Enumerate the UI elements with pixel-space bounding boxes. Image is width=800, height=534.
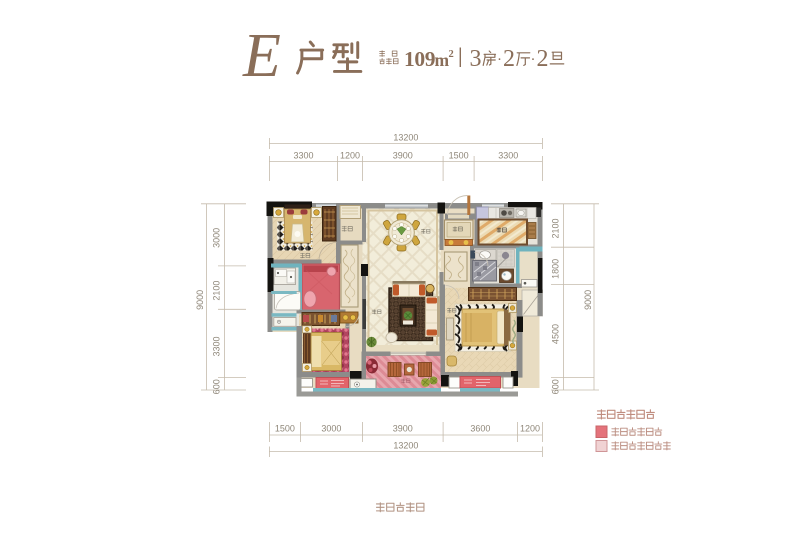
- svg-text:1200: 1200: [520, 424, 540, 434]
- svg-text:3600: 3600: [470, 424, 490, 434]
- svg-text:109: 109: [404, 47, 435, 71]
- svg-text:3300: 3300: [212, 336, 222, 356]
- svg-text:1200: 1200: [340, 151, 360, 161]
- svg-text:3000: 3000: [321, 424, 341, 434]
- svg-text:3900: 3900: [393, 151, 413, 161]
- svg-text:1500: 1500: [449, 151, 469, 161]
- svg-text:9000: 9000: [195, 290, 205, 310]
- svg-text:3000: 3000: [212, 228, 222, 248]
- svg-text:1800: 1800: [551, 259, 561, 279]
- svg-text:4500: 4500: [551, 324, 561, 344]
- svg-text:2: 2: [537, 46, 549, 72]
- svg-text:2100: 2100: [212, 281, 222, 301]
- svg-text:E: E: [242, 22, 281, 90]
- svg-text:13200: 13200: [393, 441, 418, 451]
- svg-text:2: 2: [503, 46, 515, 72]
- svg-text:·: ·: [497, 52, 502, 68]
- svg-text:m: m: [435, 50, 450, 70]
- svg-text:13200: 13200: [393, 133, 418, 143]
- svg-text:2: 2: [449, 49, 454, 60]
- svg-text:1500: 1500: [275, 424, 295, 434]
- svg-text:3: 3: [470, 46, 482, 72]
- svg-text:600: 600: [551, 379, 561, 394]
- svg-text:3900: 3900: [393, 424, 413, 434]
- svg-text:9000: 9000: [583, 290, 593, 310]
- svg-text:·: ·: [531, 52, 536, 68]
- svg-text:3300: 3300: [293, 151, 313, 161]
- svg-text:2100: 2100: [551, 218, 561, 238]
- svg-text:3300: 3300: [498, 151, 518, 161]
- svg-text:600: 600: [212, 379, 222, 394]
